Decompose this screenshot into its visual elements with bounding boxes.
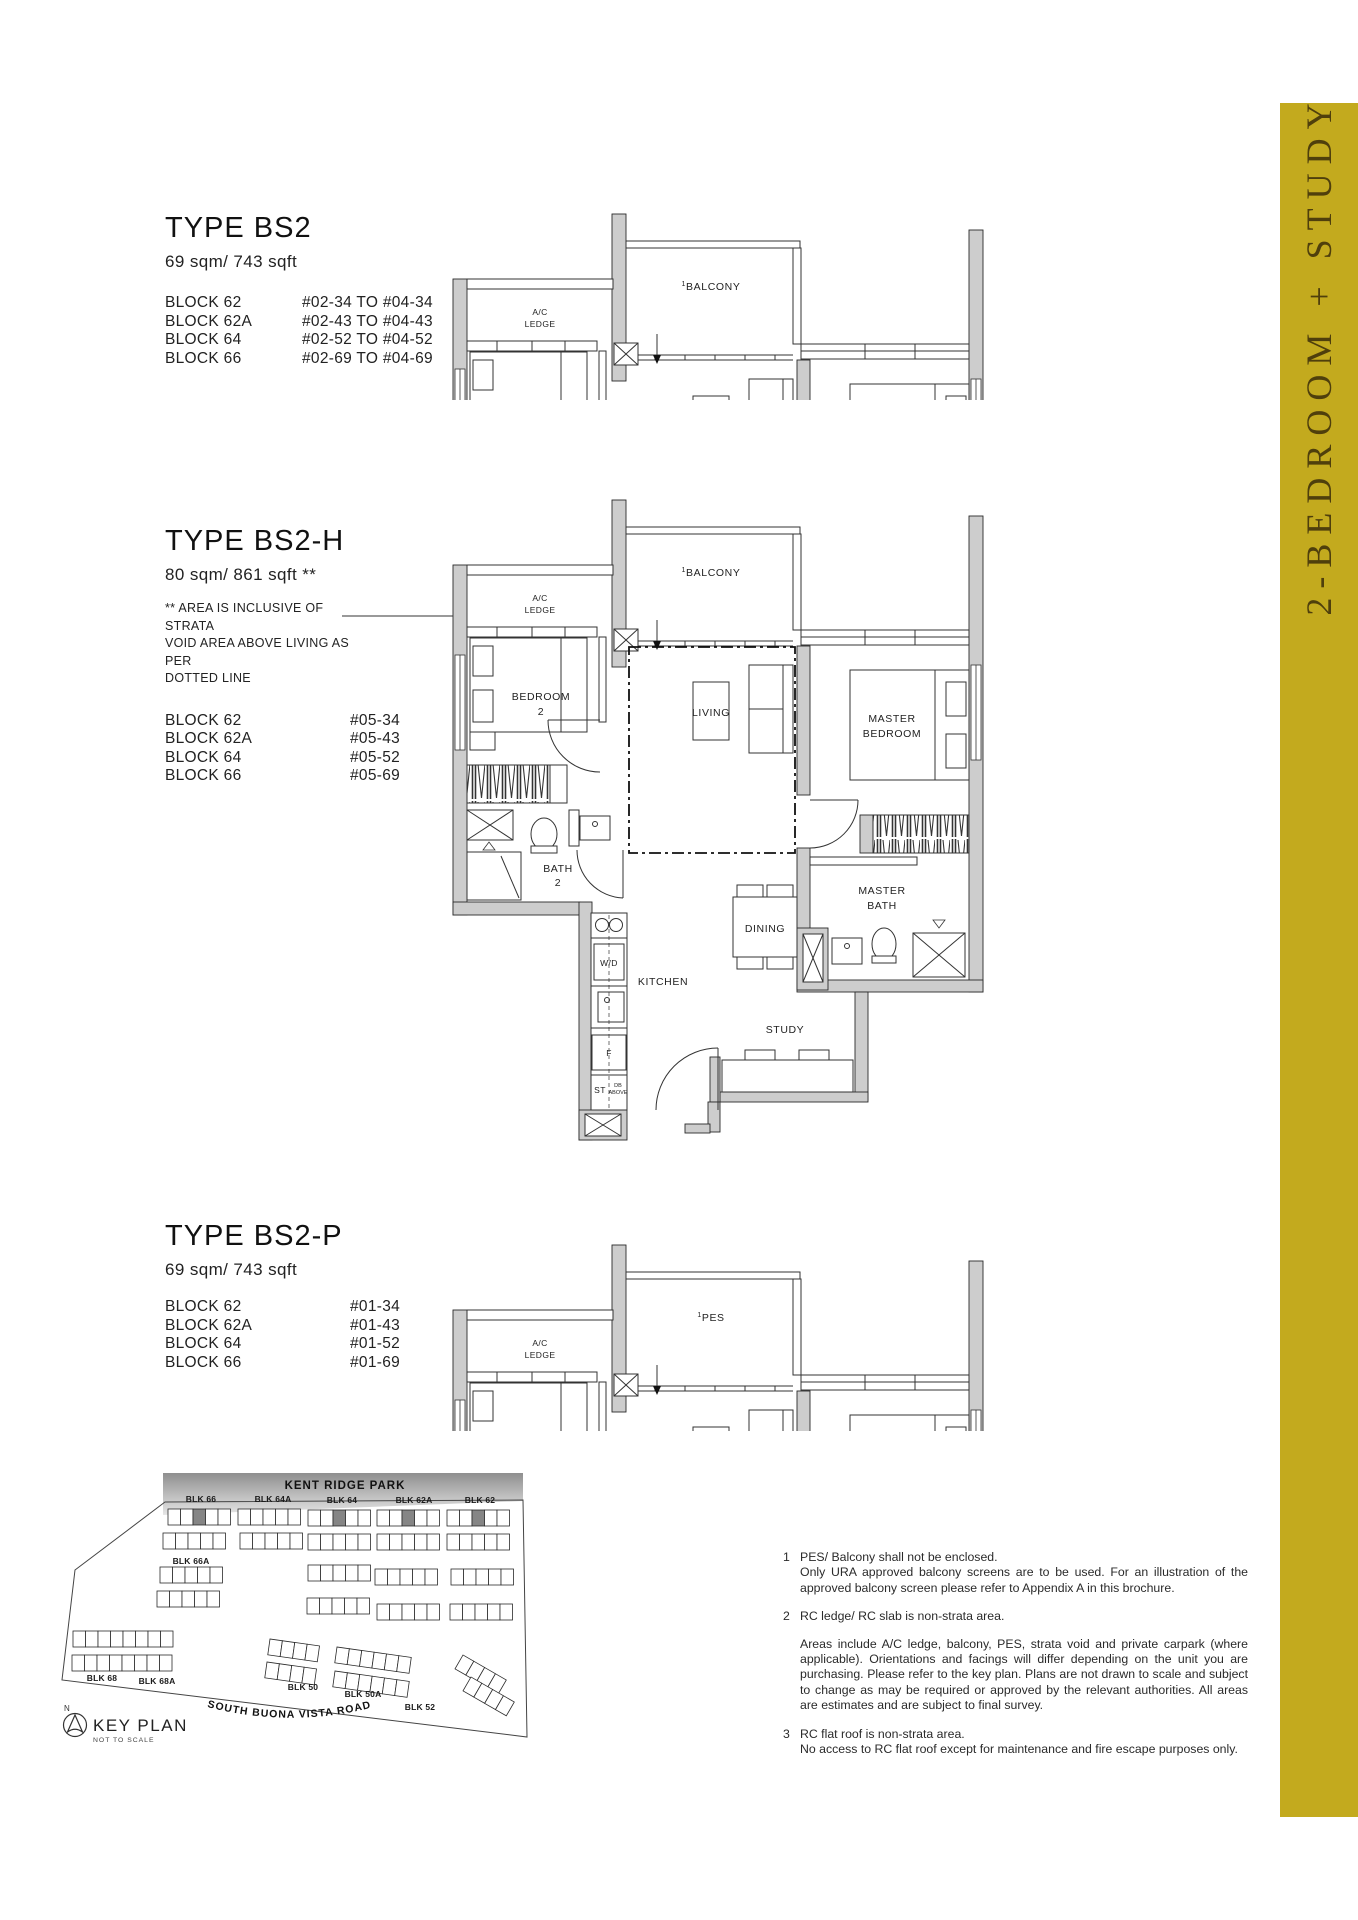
svg-text:BLK 66: BLK 66 bbox=[186, 1494, 217, 1504]
footnote-number: 2 bbox=[783, 1609, 800, 1713]
footnote-number: 1 bbox=[783, 1550, 800, 1596]
svg-text:BLK 66A: BLK 66A bbox=[173, 1556, 210, 1566]
floorplan-bs2h: 1BALCONY bbox=[335, 420, 995, 1170]
svg-text:BLK 62: BLK 62 bbox=[465, 1495, 496, 1505]
svg-text:BLK 62A: BLK 62A bbox=[396, 1495, 433, 1505]
park-label: KENT RIDGE PARK bbox=[285, 1480, 406, 1492]
footnote-1: 1 PES/ Balcony shall not be enclosed. On… bbox=[783, 1550, 1248, 1596]
svg-text:BLK 68: BLK 68 bbox=[87, 1673, 118, 1683]
svg-text:BLK 50: BLK 50 bbox=[288, 1682, 319, 1692]
footnote-3: 3 RC flat roof is non-strata area. No ac… bbox=[783, 1727, 1248, 1758]
footnotes: 1 PES/ Balcony shall not be enclosed. On… bbox=[783, 1550, 1248, 1757]
svg-text:BLK 68A: BLK 68A bbox=[139, 1676, 176, 1686]
footnote-number: 3 bbox=[783, 1727, 800, 1758]
road-label: SOUTH BUONA VISTA ROAD bbox=[206, 1698, 372, 1720]
floorplan-bs2p: 1PES bbox=[395, 1240, 995, 1431]
keyplan: KENT RIDGE PARK BLK 66 BLK 64A BLK 64 BL… bbox=[35, 1465, 595, 1765]
brochure-page: 2-BEDROOM + STUDY TYPE BS2 69 sqm/ 743 s… bbox=[0, 0, 1358, 1920]
north-label: N bbox=[64, 1704, 70, 1713]
keyplan-subtitle: NOT TO SCALE bbox=[93, 1737, 154, 1744]
svg-text:BLK 64: BLK 64 bbox=[327, 1495, 358, 1505]
keyplan-title: KEY PLAN bbox=[93, 1716, 188, 1735]
label-pes: 1PES bbox=[697, 1312, 724, 1324]
floorplan-bs2: A/C LEDGE BEDROOM 2 LIVING MASTER BEDROO… bbox=[395, 209, 995, 400]
svg-text:BLK 64A: BLK 64A bbox=[255, 1494, 292, 1504]
category-label: 2-BEDROOM + STUDY bbox=[1298, 94, 1340, 615]
strata-void-note: ** AREA IS INCLUSIVE OF STRATA VOID AREA… bbox=[165, 600, 350, 688]
label-balcony: 1BALCONY bbox=[682, 567, 741, 579]
svg-text:BLK 52: BLK 52 bbox=[405, 1702, 436, 1712]
label-balcony: 1BALCONY bbox=[682, 281, 741, 293]
compass-icon bbox=[64, 1714, 87, 1737]
svg-text:BLK 50A: BLK 50A bbox=[345, 1689, 382, 1699]
category-sidebar: 2-BEDROOM + STUDY bbox=[1280, 103, 1358, 1817]
footnote-2: 2 RC ledge/ RC slab is non-strata area. … bbox=[783, 1609, 1248, 1713]
